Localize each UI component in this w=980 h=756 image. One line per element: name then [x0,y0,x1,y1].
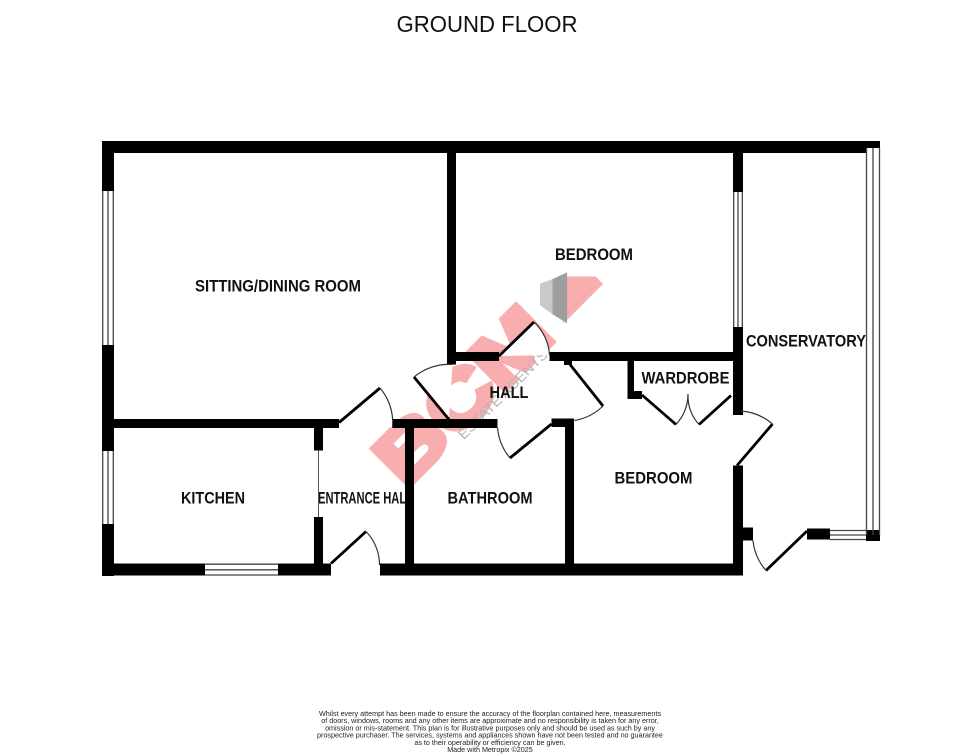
svg-text:KITCHEN: KITCHEN [181,489,245,508]
svg-text:BEDROOM: BEDROOM [555,245,633,264]
svg-text:GROUND FLOOR: GROUND FLOOR [397,11,578,37]
svg-text:BEDROOM: BEDROOM [615,469,693,488]
svg-text:WARDROBE: WARDROBE [642,369,730,388]
svg-text:Made with Metropix ©2025: Made with Metropix ©2025 [447,745,533,754]
svg-text:HALL: HALL [490,383,529,402]
svg-text:BATHROOM: BATHROOM [448,489,533,508]
svg-text:ENTRANCE HALL: ENTRANCE HALL [318,489,413,508]
svg-text:CONSERVATORY: CONSERVATORY [746,332,867,351]
svg-text:SITTING/DINING ROOM: SITTING/DINING ROOM [195,277,361,296]
